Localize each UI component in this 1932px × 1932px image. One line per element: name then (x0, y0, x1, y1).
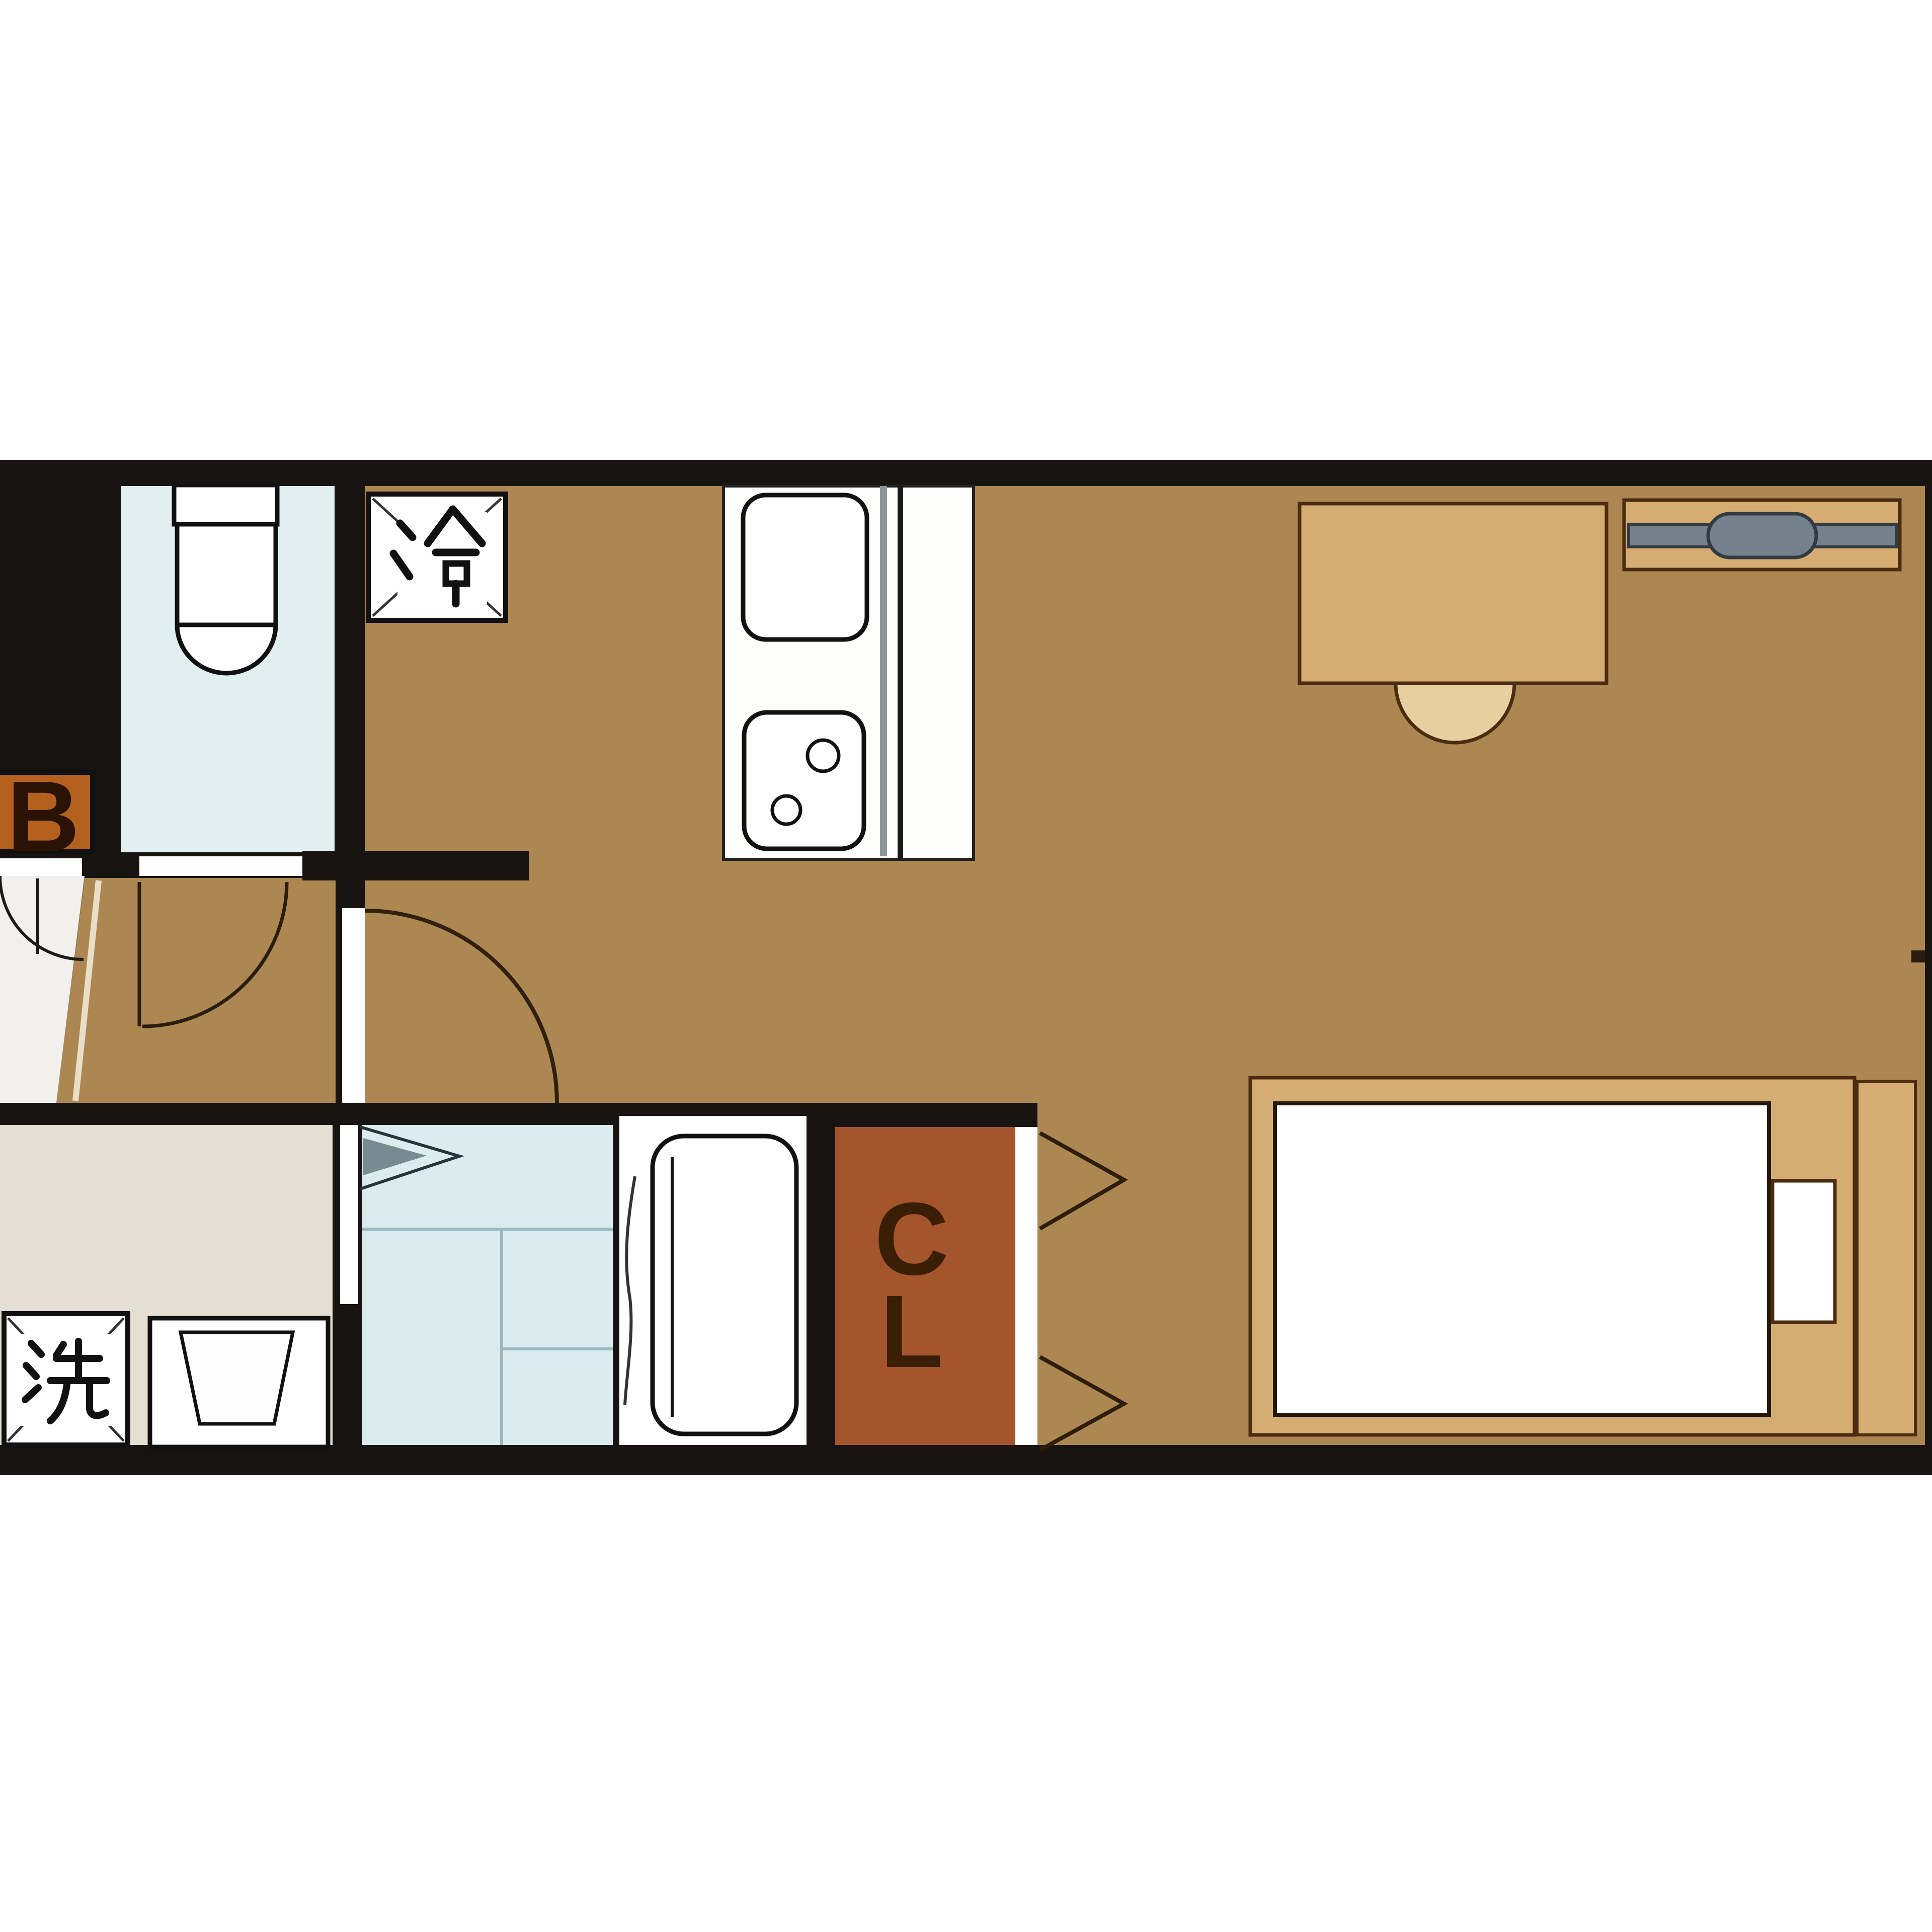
svg-text:L: L (880, 1274, 943, 1389)
svg-text:B: B (7, 761, 79, 873)
